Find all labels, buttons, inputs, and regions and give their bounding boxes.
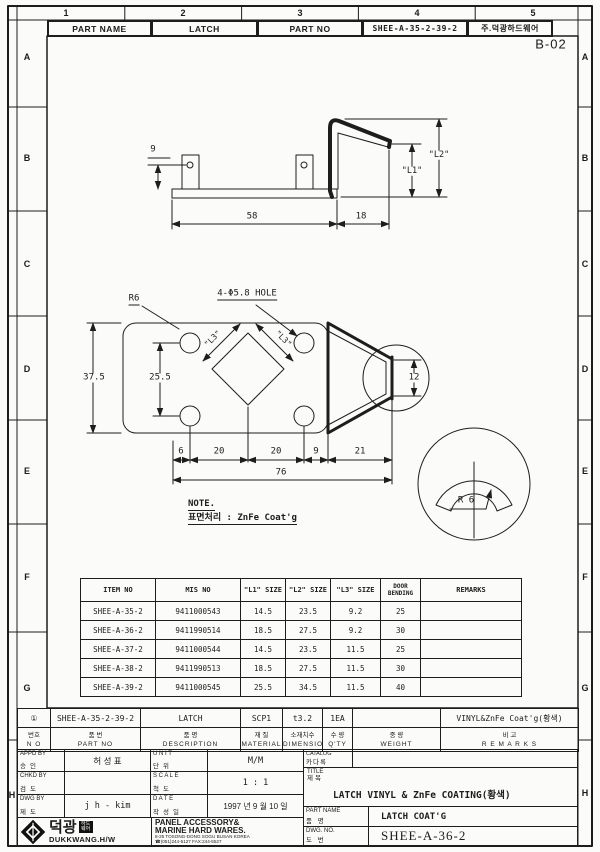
- cell-remarks: [421, 602, 522, 621]
- scale-value: 1 : 1: [207, 771, 304, 795]
- cell-l1: 25.5: [241, 678, 286, 697]
- col-item-no: ITEM NO: [81, 579, 156, 602]
- zone-letter-right: H: [582, 788, 589, 798]
- title-label-kr: 제목: [307, 775, 574, 782]
- column-number: 5: [530, 8, 535, 18]
- cell-l2: 23.5: [286, 602, 331, 621]
- hdr-remarks: 비 고R E M A R K S: [441, 728, 579, 752]
- table-row: SHEE-A-36-2 9411990514 18.5 27.5 9.2 30: [81, 621, 522, 640]
- dwg-by-value: j h - kim: [64, 794, 151, 818]
- appd-by-label: APPD BY승인: [17, 749, 65, 772]
- dim-20b: 20: [271, 448, 282, 457]
- zone-letter-left: D: [24, 364, 31, 374]
- detail-view-linework: [418, 428, 530, 540]
- cell-l1: 14.5: [241, 640, 286, 659]
- dim-25-5: 25.5: [147, 374, 173, 383]
- company-line4: ☎(051)244-5127 FAX:244-5527: [155, 840, 300, 845]
- dim-18: 18: [356, 213, 367, 222]
- cell-door: 40: [381, 678, 421, 697]
- radius-callout-r6: R6: [129, 295, 140, 306]
- hdr-part-no: 품 번PART NO: [51, 728, 141, 752]
- cell-mis-no: 9411000544: [156, 640, 241, 659]
- logo-korean-name: 덕광: [49, 820, 77, 835]
- cell-l2: 27.5: [286, 621, 331, 640]
- col-remarks: REMARKS: [421, 579, 522, 602]
- cell-l1: 18.5: [241, 621, 286, 640]
- dukkwang-logo-icon: [20, 819, 46, 845]
- parts-remarks: VINYL&ZnFe Coat'g(황색): [441, 709, 579, 728]
- column-number: 3: [297, 8, 302, 18]
- dim-58: 58: [247, 213, 258, 222]
- dim-21: 21: [355, 448, 366, 457]
- hdr-dimension: 소재치수DIMENSION: [283, 728, 323, 752]
- cell-door: 30: [381, 659, 421, 678]
- zone-letter-right: G: [581, 683, 588, 693]
- title-cell: TITLE 제목 LATCH VINYL & ZnFe COATING(황색): [303, 767, 578, 807]
- cell-l1: 14.5: [241, 602, 286, 621]
- zone-letter-right: A: [582, 52, 589, 62]
- cell-mis-no: 9411000545: [156, 678, 241, 697]
- appd-by-value: 허 성 표: [64, 749, 151, 772]
- dim-L2: "L2": [427, 151, 451, 160]
- dim-6: 6: [178, 448, 183, 457]
- zone-letter-left: A: [24, 52, 31, 62]
- cell-door: 30: [381, 621, 421, 640]
- zone-letter-left: G: [23, 683, 30, 693]
- col-door-bending: DOOR BENDING: [381, 579, 421, 602]
- scale-label: S C A L E척도: [150, 771, 208, 795]
- cell-mis-no: 9411990514: [156, 621, 241, 640]
- parts-list-row: ① SHEE-A-35-2-39-2 LATCH SCP1 t3.2 1EA V…: [18, 709, 579, 728]
- note-title: NOTE.: [188, 500, 215, 511]
- cell-mis-no: 9411990513: [156, 659, 241, 678]
- cell-remarks: [421, 640, 522, 659]
- item-size-table: ITEM NO MIS NO "L1" SIZE "L2" SIZE "L3" …: [80, 578, 522, 697]
- catalog-label: CATALOG카다록: [303, 749, 353, 768]
- top-header-part-no-label: PART NO: [257, 20, 363, 37]
- table-row: SHEE-A-35-2 9411000543 14.5 23.5 9.2 25: [81, 602, 522, 621]
- zone-letter-left: H: [9, 790, 16, 800]
- unit-value: M/M: [207, 749, 304, 772]
- parts-material: SCP1: [241, 709, 283, 728]
- parts-qty: 1EA: [323, 709, 353, 728]
- top-header-part-name-value: LATCH: [151, 20, 258, 37]
- unit-label: U N I T단위: [150, 749, 208, 772]
- dim-12: 12: [407, 374, 422, 383]
- dim-20a: 20: [214, 448, 225, 457]
- part-name-label: PART NAME품 명: [303, 806, 369, 827]
- plan-view-linework: [87, 305, 429, 484]
- hdr-description: 품 명DESCRIPTION: [141, 728, 241, 752]
- dim-9: 9: [150, 146, 155, 155]
- logo-roman-name: DUKKWANG.H/W: [49, 835, 115, 844]
- zone-letter-left: F: [24, 572, 30, 582]
- drawing-sheet: A B C D E F G H A B C D E F G H 1 2 3 4 …: [0, 0, 600, 852]
- cell-l2: 27.5: [286, 659, 331, 678]
- dwg-no-value: SHEE-A-36-2: [368, 826, 578, 846]
- date-value: 1997 년 9 월 10 일: [207, 794, 304, 818]
- dwg-by-label: DWG BY제도: [17, 794, 65, 818]
- dim-9b: 9: [313, 448, 318, 457]
- hdr-weight: 중 량WEIGHT: [353, 728, 441, 752]
- hole-callout: 4-Φ5.8 HOLE: [217, 290, 277, 301]
- chkd-by-value: [64, 771, 151, 795]
- part-name-value: LATCH COAT'G: [368, 806, 578, 827]
- hdr-no: 번호N O: [18, 728, 51, 752]
- chkd-by-label: CHKD BY검도: [17, 771, 65, 795]
- logo-badge: 하드웨어: [79, 821, 93, 833]
- zone-letter-right: C: [582, 259, 589, 269]
- dim-76: 76: [274, 469, 289, 478]
- table-row: SHEE-A-39-2 9411000545 25.5 34.5 11.5 40: [81, 678, 522, 697]
- top-header-company: 주.덕광하드웨어: [467, 20, 553, 37]
- table-row: SHEE-A-37-2 9411000544 14.5 23.5 11.5 25: [81, 640, 522, 659]
- table-row: SHEE-A-38-2 9411990513 18.5 27.5 11.5 30: [81, 659, 522, 678]
- cell-l3: 9.2: [331, 602, 381, 621]
- cell-door: 25: [381, 602, 421, 621]
- cell-item-no: SHEE-A-39-2: [81, 678, 156, 697]
- cell-l1: 18.5: [241, 659, 286, 678]
- detail-radius-r6: R 6: [458, 497, 474, 506]
- cell-l3: 9.2: [331, 621, 381, 640]
- cell-l3: 11.5: [331, 659, 381, 678]
- cell-mis-no: 9411000543: [156, 602, 241, 621]
- cell-l2: 23.5: [286, 640, 331, 659]
- parts-list-table: ① SHEE-A-35-2-39-2 LATCH SCP1 t3.2 1EA V…: [17, 708, 579, 752]
- column-number: 1: [63, 8, 68, 18]
- cell-item-no: SHEE-A-35-2: [81, 602, 156, 621]
- zone-letter-left: E: [24, 466, 30, 476]
- zone-letter-right: D: [582, 364, 589, 374]
- company-logo: 덕광 하드웨어 DUKKWANG.H/W: [17, 817, 152, 846]
- zone-letter-right: B: [582, 153, 589, 163]
- catalog-value: [352, 749, 578, 768]
- parts-no: ①: [18, 709, 51, 728]
- top-header-part-name-label: PART NAME: [47, 20, 152, 37]
- zone-letter-left: B: [24, 153, 31, 163]
- cell-remarks: [421, 678, 522, 697]
- parts-dimension: t3.2: [283, 709, 323, 728]
- item-table-header-row: ITEM NO MIS NO "L1" SIZE "L2" SIZE "L3" …: [81, 579, 522, 602]
- hdr-material: 재 질MATERIAL: [241, 728, 283, 752]
- cell-item-no: SHEE-A-38-2: [81, 659, 156, 678]
- cell-remarks: [421, 659, 522, 678]
- parts-header-row: 번호N O 품 번PART NO 품 명DESCRIPTION 재 질MATER…: [18, 728, 579, 752]
- parts-weight: [353, 709, 441, 728]
- col-l3-size: "L3" SIZE: [331, 579, 381, 602]
- cell-l3: 11.5: [331, 678, 381, 697]
- col-l2-size: "L2" SIZE: [286, 579, 331, 602]
- col-mis-no: MIS NO: [156, 579, 241, 602]
- cell-remarks: [421, 621, 522, 640]
- zone-letter-right: E: [582, 466, 588, 476]
- company-address-block: PANEL ACCESSORY& MARINE HARD WARES. 8-25…: [151, 817, 304, 846]
- zone-letter-left: C: [24, 259, 31, 269]
- drawing-title: LATCH VINYL & ZnFe COATING(황색): [333, 787, 574, 801]
- cell-item-no: SHEE-A-37-2: [81, 640, 156, 659]
- dwg-no-label: DWG. NO.도 번: [303, 826, 369, 846]
- top-header-part-no-value: SHEE-A-35-2-39-2: [362, 20, 468, 37]
- date-label: D A T E작성일: [150, 794, 208, 818]
- note-body: 표면처리 : ZnFe Coat'g: [188, 514, 297, 525]
- dim-37-5: 37.5: [81, 374, 107, 383]
- parts-description: LATCH: [141, 709, 241, 728]
- cell-item-no: SHEE-A-36-2: [81, 621, 156, 640]
- cell-door: 25: [381, 640, 421, 659]
- col-l1-size: "L1" SIZE: [241, 579, 286, 602]
- cell-l3: 11.5: [331, 640, 381, 659]
- parts-part-no: SHEE-A-35-2-39-2: [51, 709, 141, 728]
- column-number: 2: [180, 8, 185, 18]
- zone-letter-right: F: [582, 572, 588, 582]
- column-number: 4: [414, 8, 419, 18]
- cell-l2: 34.5: [286, 678, 331, 697]
- hdr-qty: 수 량Q'TY: [323, 728, 353, 752]
- dim-L1: "L1": [400, 167, 424, 176]
- sheet-code: B-02: [535, 38, 566, 51]
